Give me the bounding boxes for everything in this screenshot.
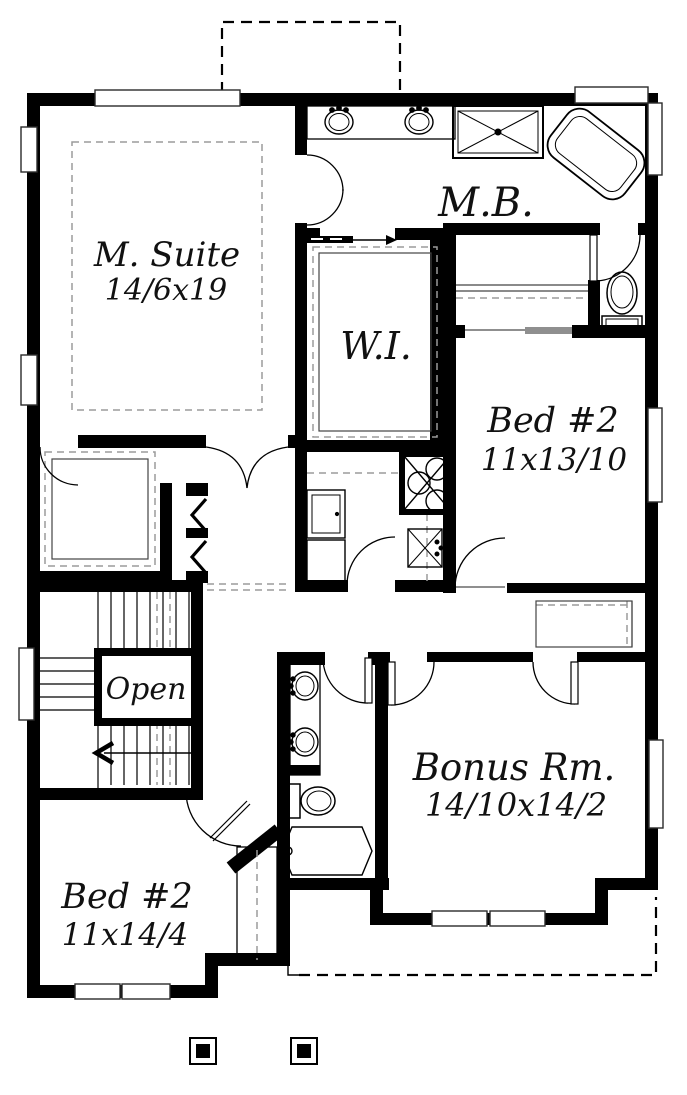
bonus-closet-shelf — [536, 601, 632, 647]
vanity-counter — [290, 655, 320, 775]
bathtub-icon — [282, 827, 372, 875]
wall-segment — [295, 580, 348, 592]
window — [21, 127, 37, 172]
closet-shelf-outline — [52, 459, 148, 559]
door-leaf — [571, 662, 578, 704]
wall-segment — [443, 325, 465, 338]
hall-bath-fixtures — [282, 655, 372, 875]
faucet-dot — [289, 740, 293, 744]
wall-segment — [395, 228, 443, 240]
faucet-dot — [291, 733, 295, 737]
window — [432, 911, 487, 926]
laundry-sink-icon — [408, 529, 443, 567]
wall-segment — [27, 93, 40, 998]
wall-segment — [295, 106, 307, 155]
wall-segment — [277, 652, 325, 665]
cabinet-lower — [307, 540, 345, 585]
wall-segment — [160, 483, 172, 583]
post-core — [297, 1044, 311, 1058]
counter-end-wall — [283, 765, 320, 775]
angled-wall-segment — [231, 830, 279, 868]
tub-inner — [551, 112, 641, 196]
toilet-bowl-inner — [611, 276, 633, 308]
room-label-bonus: Bonus Rm. — [412, 746, 616, 789]
room-label-master-bath: M.B. — [437, 180, 534, 226]
toilet-icon — [285, 784, 335, 818]
sink-icon — [289, 672, 318, 700]
door-leaf — [388, 662, 395, 705]
wall-segment — [370, 913, 608, 925]
porch-posts — [190, 1038, 317, 1064]
pocket-panel-gray — [525, 327, 572, 334]
room-label-walk-in: W.I. — [340, 324, 412, 368]
wall-segment — [572, 325, 658, 338]
door-arc — [323, 658, 368, 703]
room-label-bed2-upper: Bed #2 — [486, 401, 619, 441]
faucet-dot — [291, 677, 295, 681]
wall-segment — [444, 223, 456, 338]
faucet-dot — [330, 108, 335, 113]
room-dims-bed2-lower: 11x14/4 — [62, 917, 189, 953]
wall-segment — [595, 878, 658, 890]
faucet-dot — [344, 108, 349, 113]
faucet-dot — [424, 108, 429, 113]
faucet-dot — [337, 106, 342, 111]
bifold-zigzag — [192, 499, 206, 531]
faucet-dot — [435, 540, 439, 544]
wall-segment — [427, 652, 533, 662]
window — [648, 408, 662, 502]
door-arc — [206, 447, 247, 488]
wall-segment — [577, 652, 645, 662]
window — [95, 90, 240, 106]
closet-dashed — [45, 452, 155, 566]
door-arc — [307, 155, 343, 191]
toilet-bowl-inner — [307, 791, 331, 811]
angled-door-leaf — [210, 801, 250, 841]
floor-plan-page: M. Suite 14/6x19 M.B. W.I. Bed #2 11x13/… — [0, 0, 687, 1095]
window — [19, 648, 34, 720]
door-arc — [455, 538, 505, 588]
sink-bowl — [296, 676, 314, 696]
faucet-dot — [435, 552, 439, 556]
wall-segment — [38, 580, 203, 592]
window — [490, 911, 545, 926]
faucet-dot — [417, 106, 422, 111]
window — [648, 103, 662, 175]
stair-down-arrow-icon — [96, 743, 193, 763]
wall-segment — [295, 440, 456, 452]
leaf-line — [213, 804, 250, 841]
wall-segment — [295, 223, 307, 592]
sink-bowl — [409, 114, 429, 131]
leaf-line — [210, 801, 247, 838]
door-arc — [597, 235, 640, 281]
window — [649, 740, 663, 828]
sink-bowl — [296, 732, 314, 752]
wall-segment — [27, 788, 183, 800]
wall-segment — [277, 878, 389, 890]
window — [21, 355, 37, 405]
room-label-bed2-lower: Bed #2 — [60, 877, 193, 917]
window — [575, 87, 648, 103]
shower-drain — [495, 129, 501, 135]
wall-segment — [277, 652, 290, 966]
sink-icon — [289, 728, 318, 756]
door-arc — [533, 662, 575, 704]
cabinet-handle — [335, 512, 338, 515]
shower-icon — [453, 106, 543, 158]
room-dims-bed2-upper: 11x13/10 — [481, 442, 627, 478]
door-arc — [247, 447, 288, 488]
sink-bowl — [329, 114, 349, 131]
door-arc — [307, 189, 343, 225]
door-arc — [391, 662, 434, 705]
door-leaf — [365, 658, 372, 703]
floor-plan-svg: M. Suite 14/6x19 M.B. W.I. Bed #2 11x13/… — [0, 0, 687, 1095]
faucet-dot — [291, 691, 295, 695]
wall-segment — [507, 583, 658, 593]
wall-segment — [395, 580, 443, 592]
toilet-icon — [602, 272, 642, 333]
laundry-cabinet-icon — [307, 490, 345, 585]
corner-tub-icon — [541, 102, 651, 206]
room-dims-m-suite: 14/6x19 — [105, 273, 227, 308]
wall-segment — [183, 788, 195, 800]
cabinet-outer — [307, 490, 345, 538]
sink-icon — [325, 106, 353, 134]
room-label-m-suite: M. Suite — [93, 235, 240, 275]
tub-outline — [282, 827, 372, 875]
room-label-open: Open — [106, 672, 187, 707]
window — [75, 984, 120, 999]
window — [122, 984, 170, 999]
tub-outer — [541, 102, 651, 206]
faucet-dot — [410, 108, 415, 113]
sink-icon — [405, 106, 433, 134]
post-core — [196, 1044, 210, 1058]
bifold-zigzag — [192, 541, 206, 573]
door-arc — [347, 537, 395, 585]
wall-segment — [186, 483, 208, 496]
pocket-door — [305, 235, 397, 245]
porch-step-line — [288, 966, 299, 975]
wall-segment — [638, 223, 652, 235]
wall-segment — [78, 435, 206, 448]
door-arc — [186, 792, 241, 846]
chimney-dashed-outline — [222, 22, 400, 93]
room-dims-bonus: 14/10x14/2 — [425, 786, 607, 824]
faucet-dot — [291, 747, 295, 751]
faucet-dot — [439, 546, 443, 550]
wall-segment — [375, 652, 388, 890]
door-leaf — [590, 235, 597, 281]
faucet-dot — [289, 684, 293, 688]
